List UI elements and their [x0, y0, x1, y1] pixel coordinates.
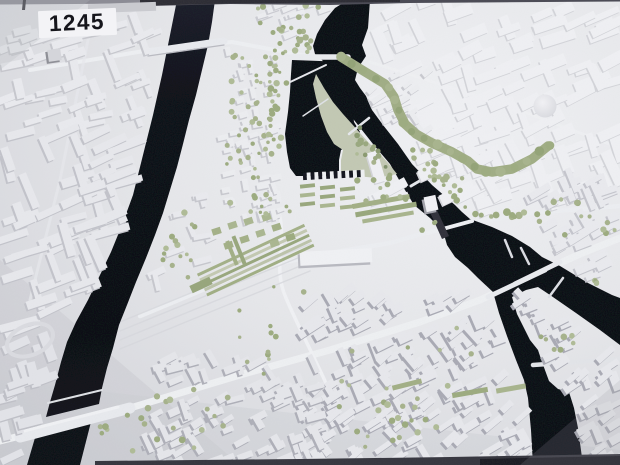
svg-text:1245: 1245: [48, 9, 105, 36]
